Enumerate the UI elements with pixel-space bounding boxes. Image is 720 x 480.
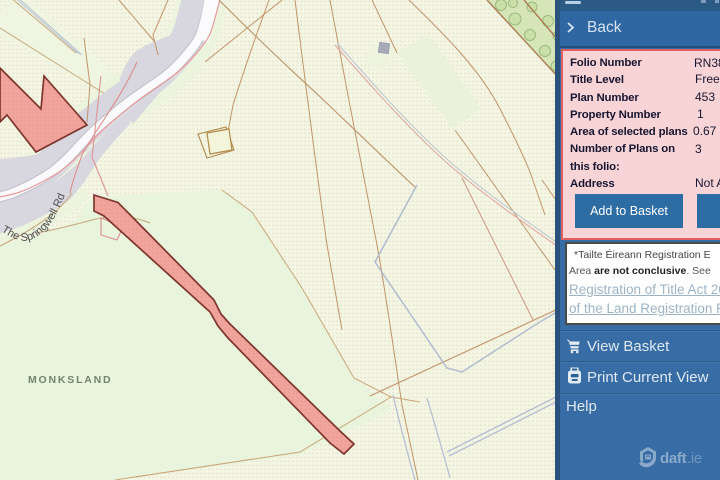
svg-text:.ie: .ie	[687, 450, 702, 467]
svg-text:MONKSLAND: MONKSLAND	[28, 374, 112, 386]
svg-text:daft: daft	[660, 450, 687, 467]
